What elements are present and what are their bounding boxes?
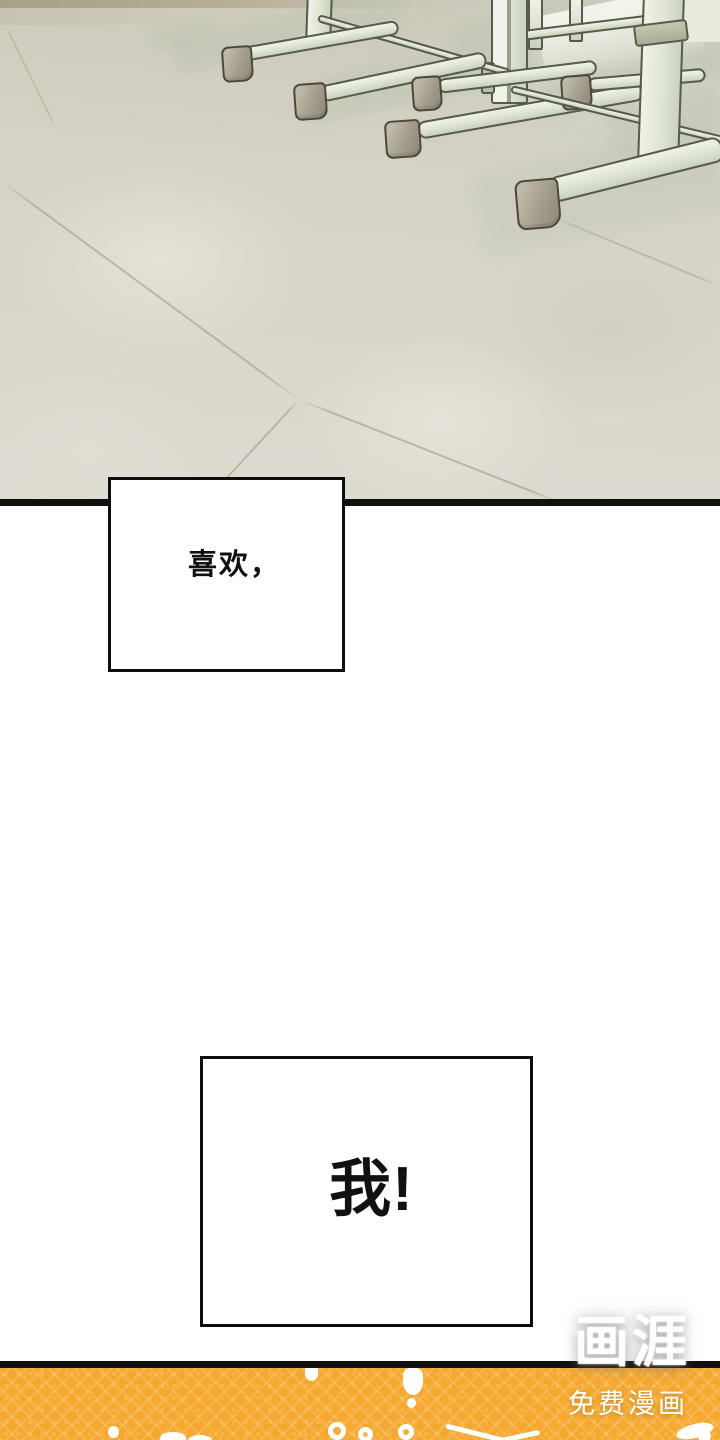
paint-splash — [188, 1435, 212, 1440]
paint-swirl — [398, 1424, 414, 1440]
paint-splash — [698, 1430, 711, 1440]
paint-splash — [160, 1432, 186, 1440]
speech-box-1: 喜欢， — [108, 477, 345, 672]
classroom-panel — [0, 0, 720, 502]
speech-box-2: 我! — [200, 1056, 533, 1327]
paint-stroke — [500, 1430, 540, 1440]
floor-grout-line — [4, 24, 56, 128]
paint-drip — [407, 1398, 416, 1408]
desk-foot-cap — [293, 82, 329, 121]
paint-swirl — [328, 1422, 346, 1440]
desk-foot-cap — [411, 75, 443, 112]
desk-frame-bar — [569, 0, 583, 42]
watermark-logo: 画涯 — [574, 1314, 690, 1372]
watermark-subtitle: 免费漫画 — [568, 1382, 688, 1421]
floor-grout-line — [0, 179, 301, 401]
speech-text-1: 喜欢， — [188, 541, 281, 583]
comic-page[interactable]: 喜欢， 我! 画涯 免费漫画 — [0, 0, 720, 1440]
speech-text-2: 我! — [329, 1138, 414, 1228]
desk-foot-cap — [384, 119, 423, 159]
paint-swirl — [358, 1427, 373, 1440]
paint-drip — [305, 1368, 318, 1381]
paint-stroke — [445, 1424, 506, 1440]
desk-frame-bar — [528, 0, 543, 50]
paint-drip — [108, 1426, 119, 1438]
desk-foot-cap — [514, 177, 562, 231]
desk-foot-cap — [221, 45, 254, 83]
paint-drip — [403, 1368, 423, 1395]
